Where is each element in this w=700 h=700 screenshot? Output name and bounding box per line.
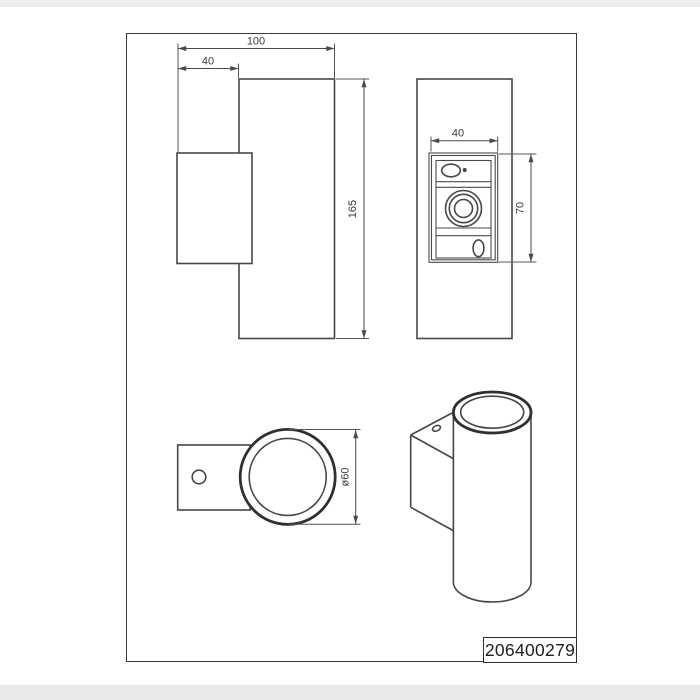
dim-label-bracket-width: 40: [202, 56, 214, 68]
dim-label-diameter: ø60: [340, 468, 352, 487]
side-view-bracket-outline: [177, 153, 252, 264]
dim-label-total-width: 100: [247, 36, 265, 48]
side-view: 100 40 165: [177, 36, 369, 339]
drawing-canvas: 100 40 165 4: [0, 0, 700, 700]
perspective-bracket: [411, 413, 454, 531]
cylinder-top-rim-outer: [453, 392, 531, 433]
perspective-view: [411, 392, 531, 602]
cylinder-outer-circle: [240, 429, 335, 524]
part-number: 206400279: [485, 640, 575, 661]
dim-label-plate-height: 70: [515, 202, 527, 214]
dim-label-plate-width: 40: [452, 128, 464, 140]
part-number-box: 206400279: [483, 637, 577, 663]
top-view: ø60: [178, 429, 361, 524]
cylinder-body-fill: [453, 413, 531, 603]
bracket-screw-hole-3d: [432, 424, 442, 432]
side-view-body-outline: [239, 79, 335, 339]
dim-label-height: 165: [347, 200, 359, 218]
screw-dot: [463, 168, 467, 172]
technical-drawing-page: 100 40 165 4: [0, 0, 700, 700]
front-view: 40 70: [417, 79, 537, 339]
